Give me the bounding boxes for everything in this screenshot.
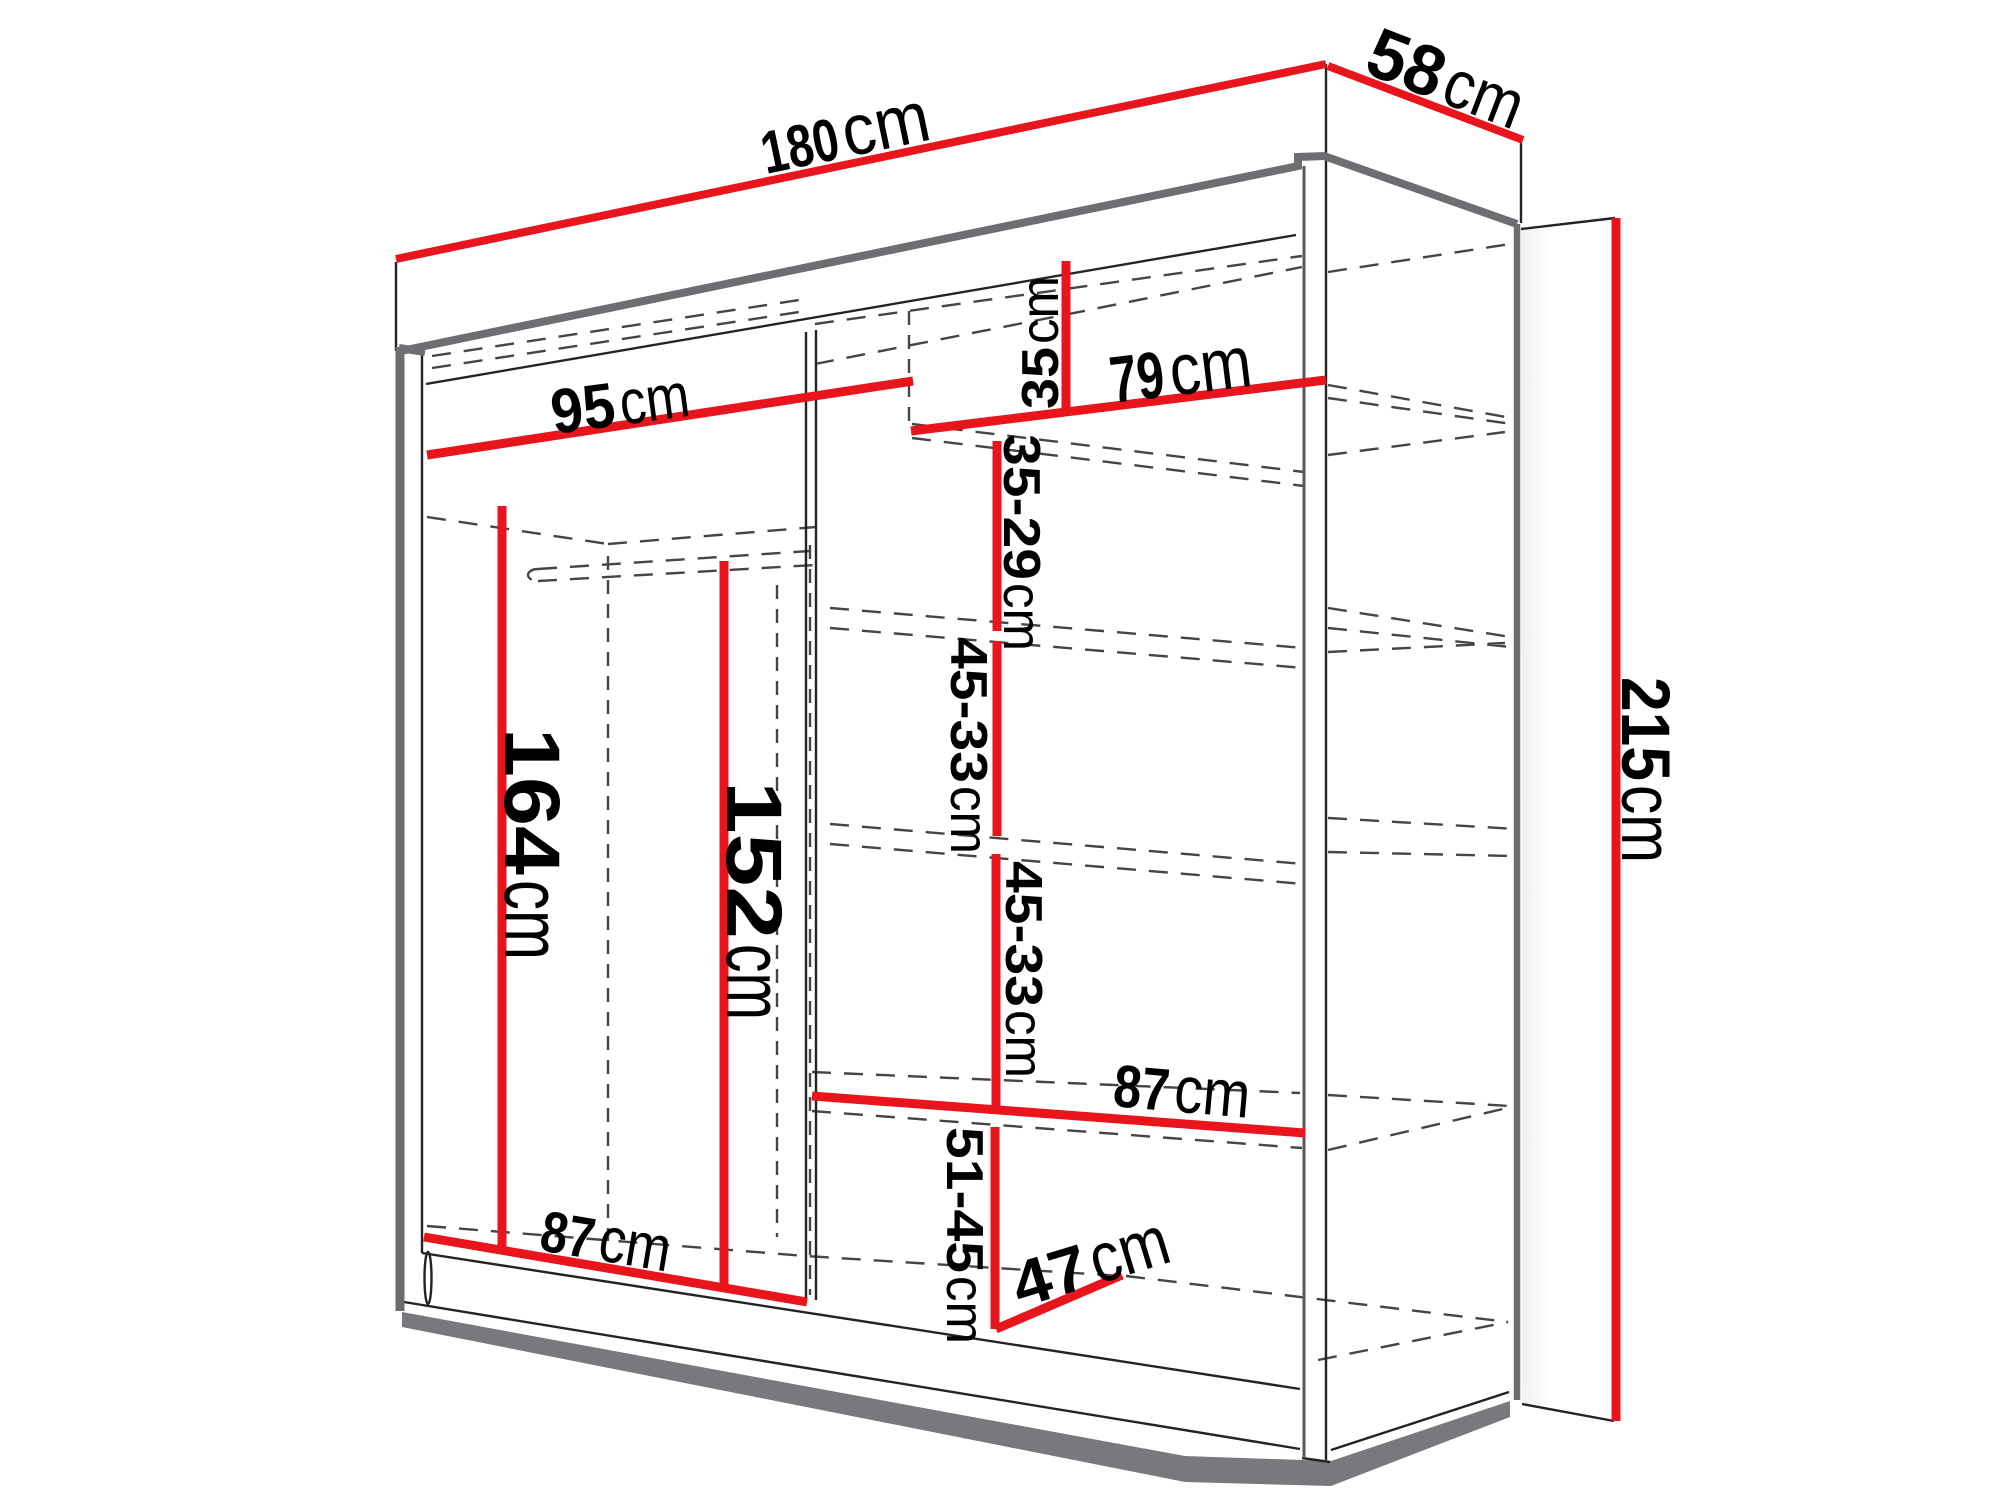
svg-text:35-29cm: 35-29cm xyxy=(992,434,1052,651)
svg-text:51-45cm: 51-45cm xyxy=(935,1127,995,1344)
svg-text:164cm: 164cm xyxy=(487,728,577,960)
svg-text:45-33cm: 45-33cm xyxy=(994,861,1054,1078)
svg-text:45-33cm: 45-33cm xyxy=(939,637,999,854)
svg-text:35cm: 35cm xyxy=(1010,276,1070,409)
svg-text:215cm: 215cm xyxy=(1606,677,1687,863)
svg-text:152cm: 152cm xyxy=(709,781,799,1020)
svg-text:87cm: 87cm xyxy=(1111,1046,1254,1132)
